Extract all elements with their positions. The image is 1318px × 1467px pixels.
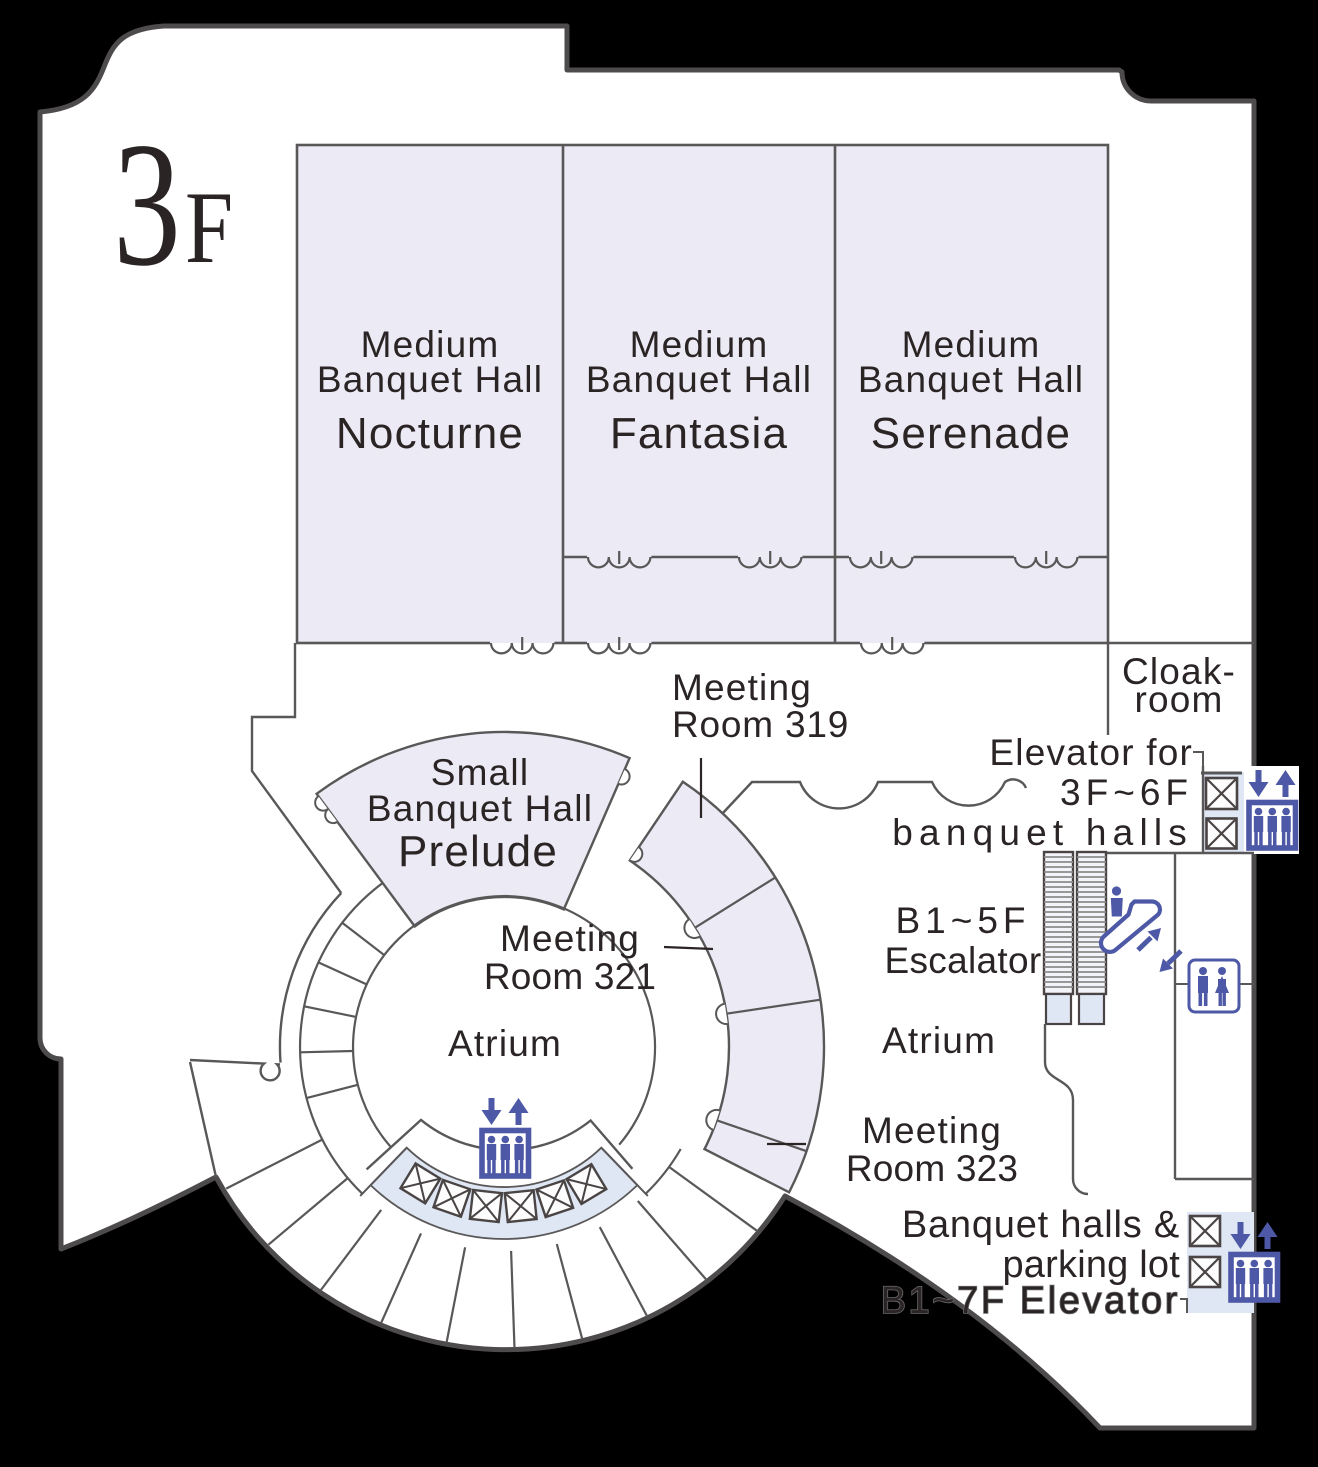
svg-text:Serenade: Serenade	[871, 409, 1071, 458]
svg-text:Elevator for: Elevator for	[989, 732, 1193, 773]
svg-text:Nocturne: Nocturne	[336, 409, 524, 458]
svg-text:Meeting: Meeting	[672, 667, 812, 708]
svg-text:Room 321: Room 321	[484, 956, 656, 997]
svg-text:Meeting: Meeting	[862, 1110, 1002, 1151]
svg-text:Prelude: Prelude	[398, 827, 558, 876]
svg-text:Room 319: Room 319	[672, 704, 849, 745]
svg-text:Meeting: Meeting	[500, 918, 640, 959]
svg-text:Escalator: Escalator	[885, 940, 1042, 981]
svg-text:3: 3	[113, 106, 181, 303]
svg-text:room: room	[1134, 679, 1223, 720]
svg-text:Fantasia: Fantasia	[610, 409, 788, 458]
svg-text:B1~7F Elevator: B1~7F Elevator	[881, 1280, 1180, 1322]
svg-text:F: F	[185, 170, 233, 285]
svg-text:Atrium: Atrium	[448, 1023, 562, 1064]
svg-text:Banquet Hall: Banquet Hall	[858, 359, 1084, 400]
svg-text:Banquet halls &: Banquet halls &	[902, 1204, 1180, 1246]
svg-text:Atrium: Atrium	[882, 1020, 996, 1061]
svg-text:Banquet Hall: Banquet Hall	[367, 788, 593, 829]
svg-text:banquet halls: banquet halls	[892, 812, 1193, 853]
svg-text:B1~5F: B1~5F	[895, 900, 1030, 941]
svg-text:Small: Small	[431, 752, 530, 793]
svg-text:Banquet Hall: Banquet Hall	[317, 359, 543, 400]
svg-text:Banquet Hall: Banquet Hall	[586, 359, 812, 400]
svg-text:Room 323: Room 323	[846, 1148, 1018, 1189]
svg-text:3F~6F: 3F~6F	[1060, 772, 1193, 813]
